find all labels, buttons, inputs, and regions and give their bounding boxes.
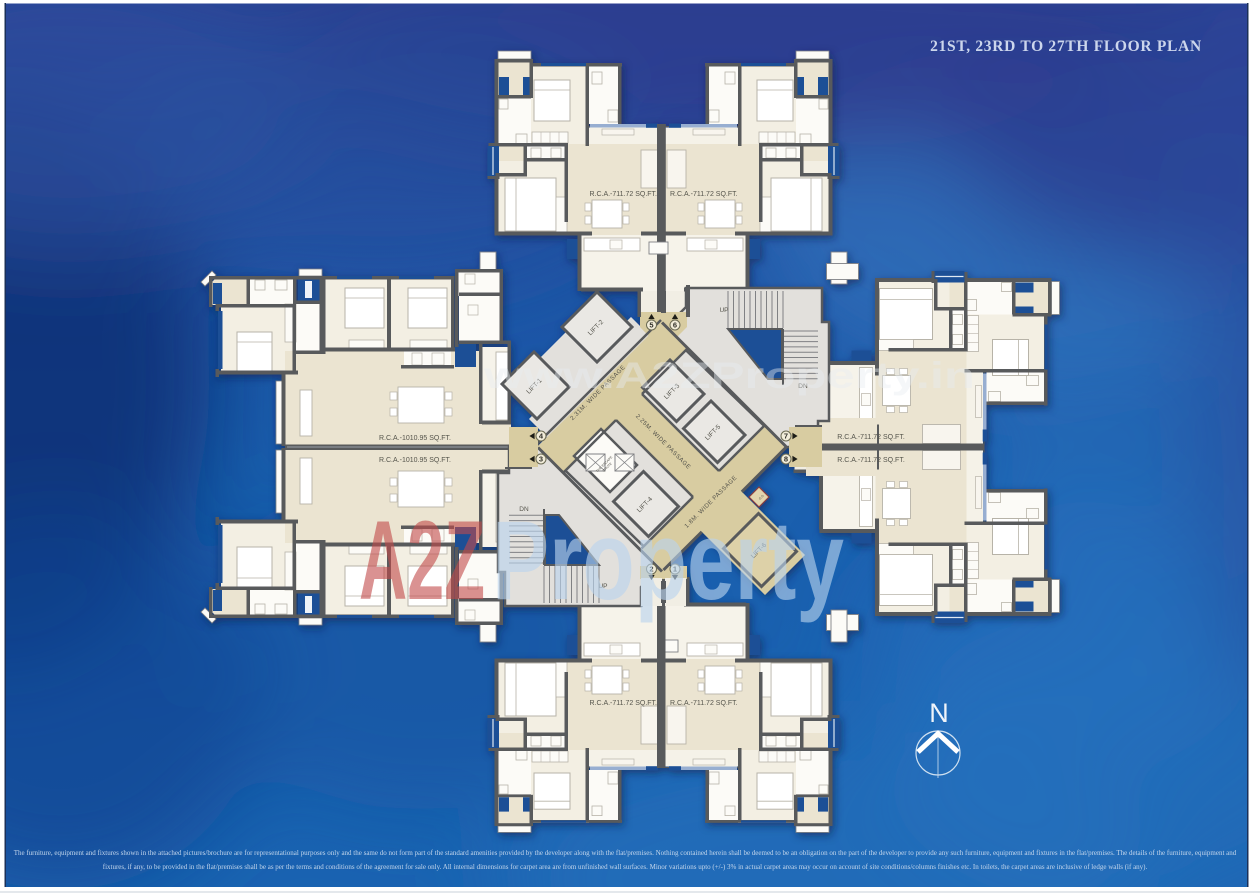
svg-text:The furniture, equipment and f: The furniture, equipment and fixtures sh… bbox=[14, 849, 1237, 857]
svg-text:R.C.A.-711.72 SQ.FT.: R.C.A.-711.72 SQ.FT. bbox=[589, 191, 657, 198]
svg-text:R.C.A.-711.72 SQ.FT.: R.C.A.-711.72 SQ.FT. bbox=[589, 700, 657, 707]
svg-text:N: N bbox=[929, 698, 949, 728]
svg-text:fixtures, if any, to be provid: fixtures, if any, to be provided in the … bbox=[103, 863, 1148, 871]
svg-text:R.C.A.-711.72 SQ.FT.: R.C.A.-711.72 SQ.FT. bbox=[670, 191, 738, 198]
svg-text:R.C.A.-711.72 SQ.FT.: R.C.A.-711.72 SQ.FT. bbox=[837, 434, 905, 441]
svg-text:7: 7 bbox=[784, 432, 788, 441]
svg-text:Property: Property bbox=[492, 498, 844, 623]
svg-text:3: 3 bbox=[539, 455, 543, 464]
svg-text:6: 6 bbox=[673, 321, 677, 330]
svg-text:5: 5 bbox=[649, 321, 653, 330]
svg-text:UP: UP bbox=[719, 307, 728, 314]
svg-text:www.A2ZProperty.in: www.A2ZProperty.in bbox=[483, 355, 975, 396]
svg-text:R.C.A.-711.72 SQ.FT.: R.C.A.-711.72 SQ.FT. bbox=[837, 457, 905, 464]
svg-text:R.C.A.-1010.95 SQ.FT.: R.C.A.-1010.95 SQ.FT. bbox=[379, 457, 451, 464]
svg-text:8: 8 bbox=[784, 455, 788, 464]
svg-text:21ST, 23RD TO 27TH FLOOR PLAN: 21ST, 23RD TO 27TH FLOOR PLAN bbox=[930, 38, 1202, 55]
svg-text:A2Z: A2Z bbox=[359, 498, 485, 623]
svg-text:R.C.A.-1010.95 SQ.FT.: R.C.A.-1010.95 SQ.FT. bbox=[379, 435, 451, 442]
svg-text:R.C.A.-711.72 SQ.FT.: R.C.A.-711.72 SQ.FT. bbox=[670, 700, 738, 707]
